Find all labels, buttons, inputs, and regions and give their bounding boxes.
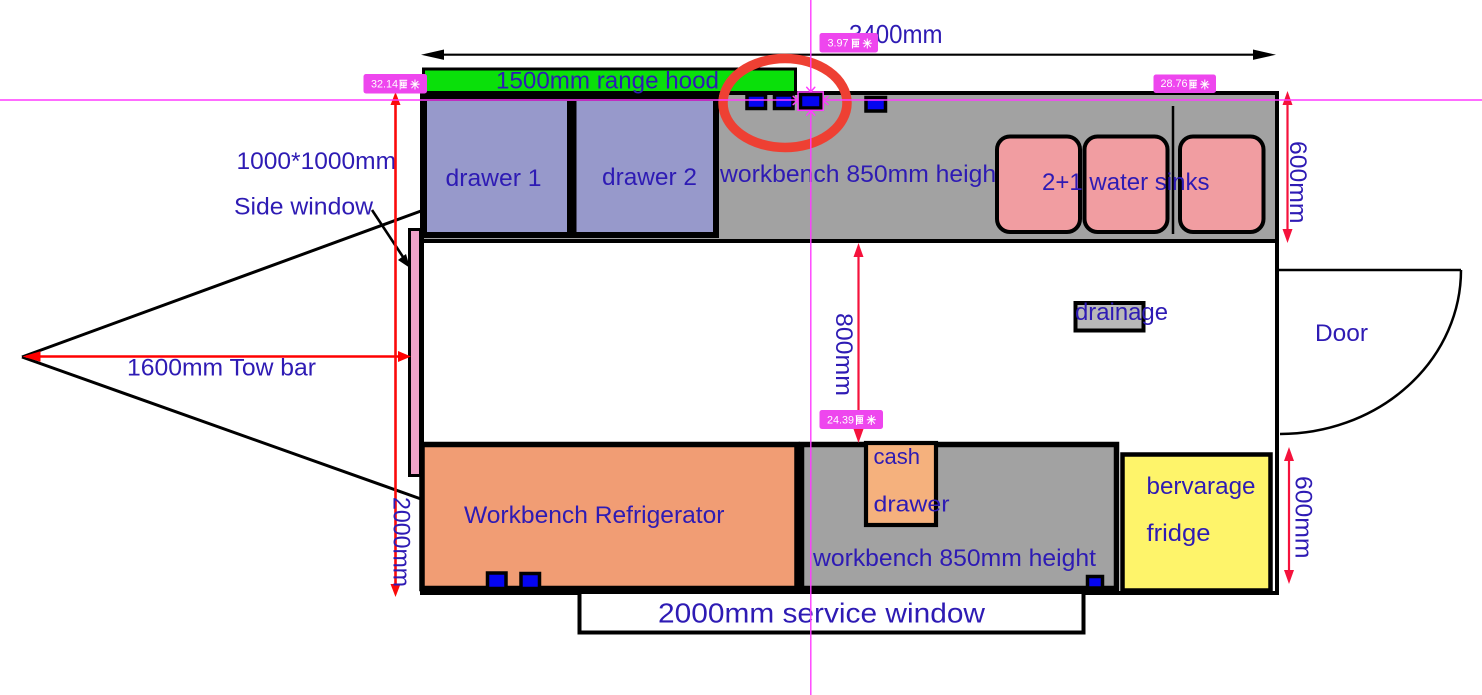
svg-text:2000mm service window: 2000mm service window <box>658 598 985 629</box>
svg-text:workbench 850mm height: workbench 850mm height <box>719 161 1003 188</box>
svg-text:drawer 1: drawer 1 <box>446 165 542 192</box>
svg-text:drawer 2: drawer 2 <box>602 164 697 191</box>
svg-text:2000mm: 2000mm <box>388 497 415 587</box>
svg-text:Door: Door <box>1315 320 1368 347</box>
svg-text:28.76: 28.76 <box>1161 78 1188 90</box>
svg-text:32.14: 32.14 <box>371 78 398 90</box>
svg-text:Side window: Side window <box>234 194 374 221</box>
svg-text:workbench 850mm height: workbench 850mm height <box>812 545 1096 572</box>
svg-text:bervarage: bervarage <box>1147 473 1256 500</box>
svg-text:drawer: drawer <box>874 492 951 517</box>
svg-text:cash: cash <box>874 444 921 469</box>
svg-text:24.39: 24.39 <box>827 415 854 427</box>
svg-text:600mm: 600mm <box>1284 141 1311 224</box>
svg-text:800mm: 800mm <box>830 313 857 396</box>
svg-text:fridge: fridge <box>1147 520 1211 547</box>
svg-text:1500mm range hood: 1500mm range hood <box>496 68 719 95</box>
svg-text:1000*1000mm: 1000*1000mm <box>237 148 397 175</box>
svg-text:3.97: 3.97 <box>828 38 849 50</box>
svg-text:drainage: drainage <box>1075 299 1168 326</box>
svg-text:600mm: 600mm <box>1290 476 1317 559</box>
svg-text:1600mm Tow bar: 1600mm Tow bar <box>127 355 316 382</box>
svg-text:Workbench Refrigerator: Workbench Refrigerator <box>464 502 725 529</box>
svg-text:2+1 water sinks: 2+1 water sinks <box>1042 169 1210 196</box>
